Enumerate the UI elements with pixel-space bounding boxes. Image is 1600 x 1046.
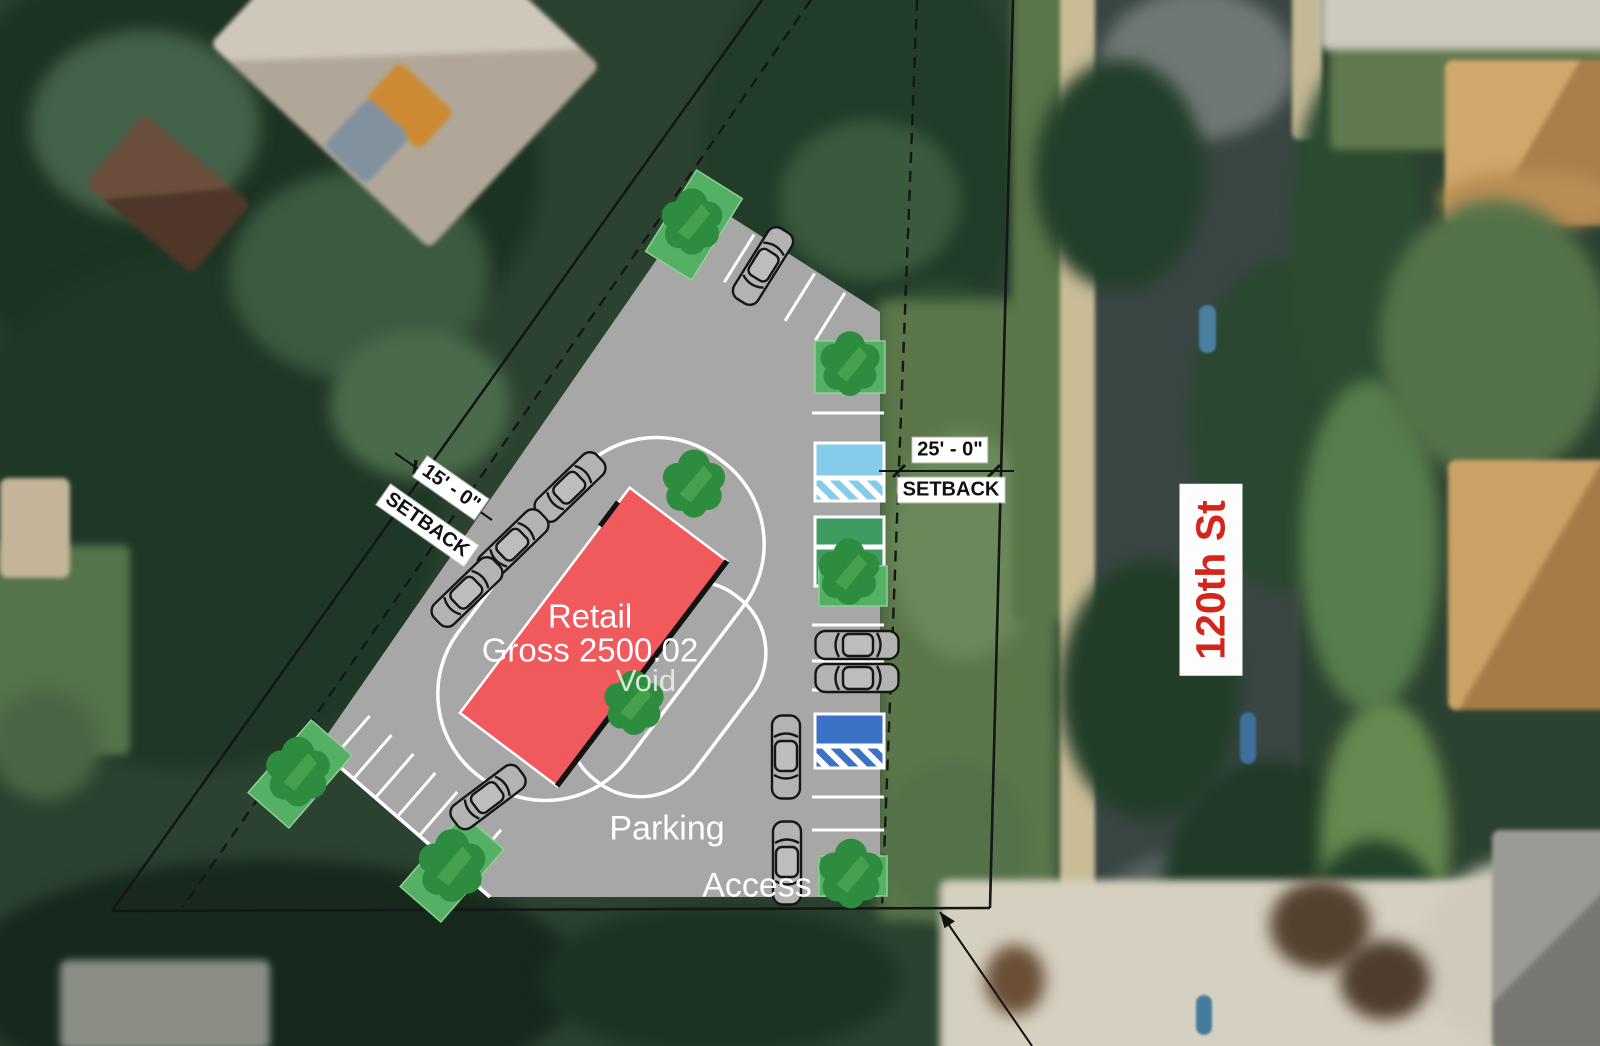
building-name: Retail	[482, 600, 698, 634]
setback-east-dimension: 25' - 0"	[912, 438, 987, 463]
property-line-east	[990, 0, 1013, 908]
access-label: Access	[702, 867, 812, 906]
stall-sky-blue	[815, 443, 884, 477]
car-icon	[772, 716, 800, 799]
stall-sky-blue-hatched	[815, 479, 884, 501]
property-line-south	[112, 908, 990, 911]
site-plan-screenshot: Retail Gross 2500.02 Void Parking Access…	[0, 0, 1600, 1046]
car-icon	[816, 631, 899, 659]
access-arrow	[940, 912, 1032, 1046]
stall-accessible-hatched	[815, 747, 884, 768]
stall-accessible-blue	[815, 714, 884, 745]
building-label: Retail Gross 2500.02	[482, 600, 698, 669]
street-name-label: 120th St	[1180, 484, 1243, 676]
parking-label: Parking	[609, 810, 724, 849]
void-label: Void	[616, 663, 676, 699]
setback-east-label: SETBACK	[898, 478, 1005, 503]
car-icon	[816, 664, 899, 692]
